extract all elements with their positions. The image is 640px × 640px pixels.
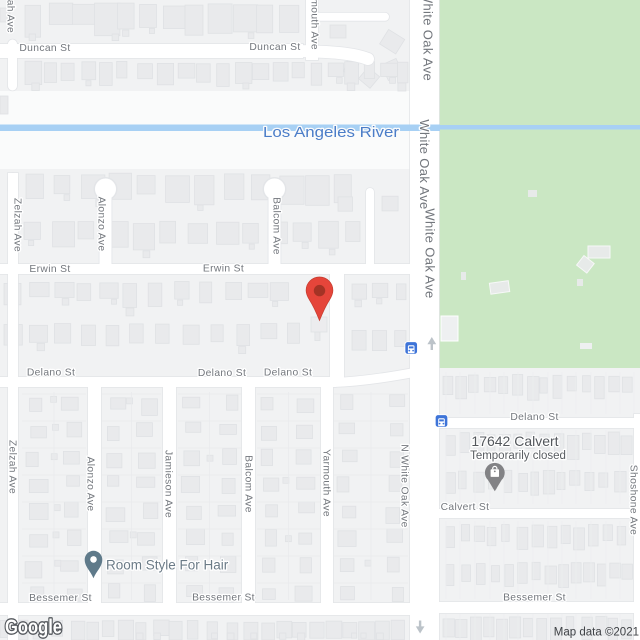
svg-text:White Oak Ave: White Oak Ave xyxy=(417,119,432,209)
svg-text:Map data ©2021: Map data ©2021 xyxy=(554,627,639,639)
svg-text:Los Angeles River: Los Angeles River xyxy=(263,124,399,141)
svg-text:Balcom Ave: Balcom Ave xyxy=(270,197,281,255)
svg-text:Zelzah Ave: Zelzah Ave xyxy=(6,440,17,494)
svg-text:Jamieson Ave: Jamieson Ave xyxy=(162,450,173,518)
svg-text:Delano St: Delano St xyxy=(27,368,75,379)
svg-text:White Oak Ave: White Oak Ave xyxy=(422,208,437,298)
svg-text:17642 Calvert: 17642 Calvert xyxy=(471,433,558,449)
svg-text:Zelzah Ave: Zelzah Ave xyxy=(11,198,22,252)
svg-text:Bessemer St: Bessemer St xyxy=(192,593,255,604)
svg-text:Delano St: Delano St xyxy=(510,412,558,423)
svg-text:Balcom Ave: Balcom Ave xyxy=(242,455,253,513)
svg-text:Google: Google xyxy=(5,617,62,639)
svg-text:Shoshone Ave: Shoshone Ave xyxy=(627,465,638,535)
svg-text:Room Style For Hair: Room Style For Hair xyxy=(106,558,229,573)
svg-text:Alonzo Ave: Alonzo Ave xyxy=(95,197,106,252)
svg-text:N White Oak Ave: N White Oak Ave xyxy=(398,444,409,527)
svg-text:Erwin St: Erwin St xyxy=(29,264,70,275)
svg-text:Calvert St: Calvert St xyxy=(441,502,490,513)
svg-text:Erwin St: Erwin St xyxy=(203,264,244,275)
svg-text:Bessemer St: Bessemer St xyxy=(503,593,566,604)
svg-text:Temporarily closed: Temporarily closed xyxy=(470,450,566,462)
svg-text:White Oak Ave: White Oak Ave xyxy=(420,0,435,81)
svg-text:Delano St: Delano St xyxy=(198,368,246,379)
svg-text:Delano St: Delano St xyxy=(264,368,312,379)
svg-text:Yarmouth Ave: Yarmouth Ave xyxy=(320,449,331,517)
svg-text:Duncan St: Duncan St xyxy=(249,42,300,53)
svg-text:Zelzah Ave: Zelzah Ave xyxy=(4,0,15,33)
svg-text:Duncan St: Duncan St xyxy=(19,43,70,54)
svg-text:Yarmouth Ave: Yarmouth Ave xyxy=(308,0,319,50)
svg-text:Bessemer St: Bessemer St xyxy=(29,593,92,604)
svg-text:Alonzo Ave: Alonzo Ave xyxy=(84,457,95,512)
